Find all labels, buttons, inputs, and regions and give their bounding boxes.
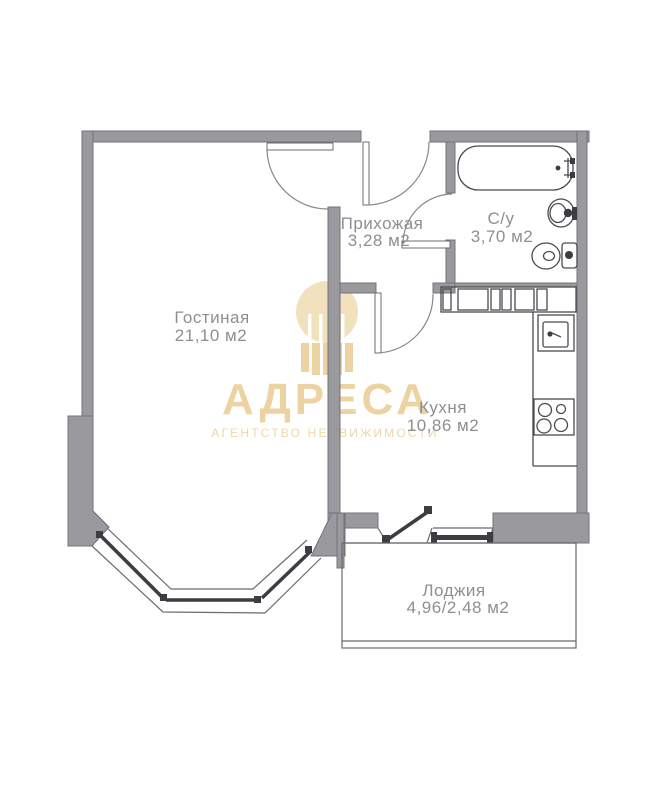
- entrance-door-arc: [366, 142, 429, 205]
- room-bathroom-name: С/у: [488, 209, 515, 228]
- wall-left-lower: [68, 416, 109, 546]
- stove-icon: [534, 399, 574, 435]
- room-living: Гостиная 21,10 м2: [174, 308, 249, 345]
- living-door-leaf: [267, 143, 333, 150]
- wall-top-right: [430, 131, 589, 142]
- room-kitchen-name: Кухня: [419, 398, 467, 417]
- room-loggia-area: 4,96/2,48 м2: [407, 598, 510, 617]
- wall-hall-kitchen-left: [340, 283, 376, 293]
- wall-right: [577, 131, 587, 543]
- bathroom-fixtures: [458, 146, 577, 269]
- kitchen-door-leaf: [375, 293, 381, 353]
- room-hallway-area: 3,28 м2: [348, 231, 410, 250]
- entrance-door-leaf: [363, 142, 369, 205]
- floor-plan: Гостиная 21,10 м2 Прихожая 3,28 м2 С/у 3…: [0, 0, 655, 800]
- room-bathroom-area: 3,70 м2: [471, 227, 533, 246]
- floorplan-page: АДРЕСА АГЕНТСТВО НЕДВИЖИМОСТИ: [0, 0, 655, 800]
- bathroom-sink-icon: [548, 199, 577, 227]
- wall-left-upper: [82, 131, 93, 416]
- wall-hall-bath-upper: [446, 142, 455, 193]
- wall-top-left: [82, 131, 361, 142]
- room-labels: Гостиная 21,10 м2 Прихожая 3,28 м2 С/у 3…: [174, 209, 533, 617]
- kitchen-sink-icon: [538, 315, 574, 351]
- room-living-area: 21,10 м2: [175, 326, 247, 345]
- room-kitchen-area: 10,86 м2: [407, 416, 479, 435]
- room-kitchen: Кухня 10,86 м2: [407, 398, 479, 435]
- balcony-door-icon: [382, 506, 432, 543]
- wall-loggia-top-right: [493, 513, 589, 543]
- bay-window-icon: [92, 528, 321, 613]
- room-living-name: Гостиная: [174, 308, 249, 327]
- kitchen-fixtures: [441, 287, 577, 466]
- living-door-arc: [267, 150, 328, 209]
- wall-living-hall: [328, 207, 340, 513]
- room-loggia: Лоджия 4,96/2,48 м2: [407, 581, 510, 617]
- room-bathroom: С/у 3,70 м2: [471, 209, 533, 246]
- kitchen-door-arc: [378, 294, 433, 353]
- wall-loggia-left: [337, 513, 344, 568]
- toilet-icon: [532, 243, 577, 269]
- walls: [68, 131, 589, 568]
- loggia-window-icon: [431, 532, 493, 543]
- wall-hall-kitchen-right: [433, 283, 455, 293]
- kitchen-counter: [441, 287, 577, 466]
